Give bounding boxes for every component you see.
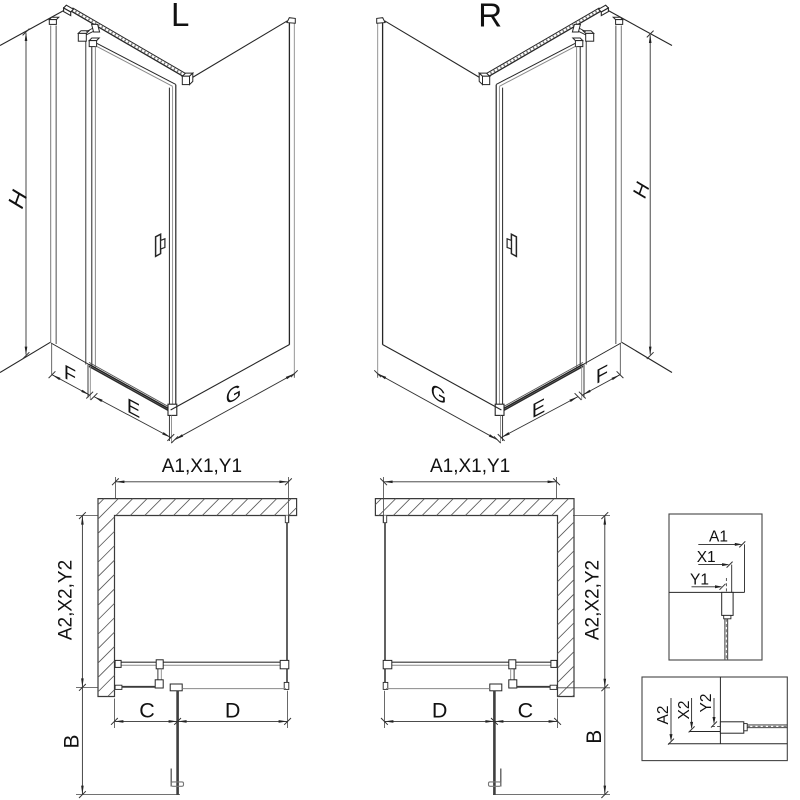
svg-text:A1,X1,Y1: A1,X1,Y1 xyxy=(162,456,242,477)
svg-text:Y1: Y1 xyxy=(690,571,709,588)
svg-text:L: L xyxy=(171,0,189,33)
svg-text:A1,X1,Y1: A1,X1,Y1 xyxy=(430,456,510,477)
svg-text:X2: X2 xyxy=(676,701,693,720)
svg-text:X1: X1 xyxy=(697,549,716,566)
svg-text:B: B xyxy=(583,730,606,744)
svg-text:Y2: Y2 xyxy=(698,694,715,713)
svg-text:C: C xyxy=(139,699,155,723)
svg-text:A2,X2,Y2: A2,X2,Y2 xyxy=(56,560,77,640)
svg-text:D: D xyxy=(432,699,448,723)
svg-text:D: D xyxy=(225,699,241,723)
svg-text:C: C xyxy=(518,699,534,723)
svg-text:R: R xyxy=(478,0,502,34)
svg-text:A1: A1 xyxy=(709,529,728,546)
svg-text:A2: A2 xyxy=(655,706,672,725)
svg-text:A2,X2,Y2: A2,X2,Y2 xyxy=(583,560,604,640)
svg-text:B: B xyxy=(61,734,84,748)
